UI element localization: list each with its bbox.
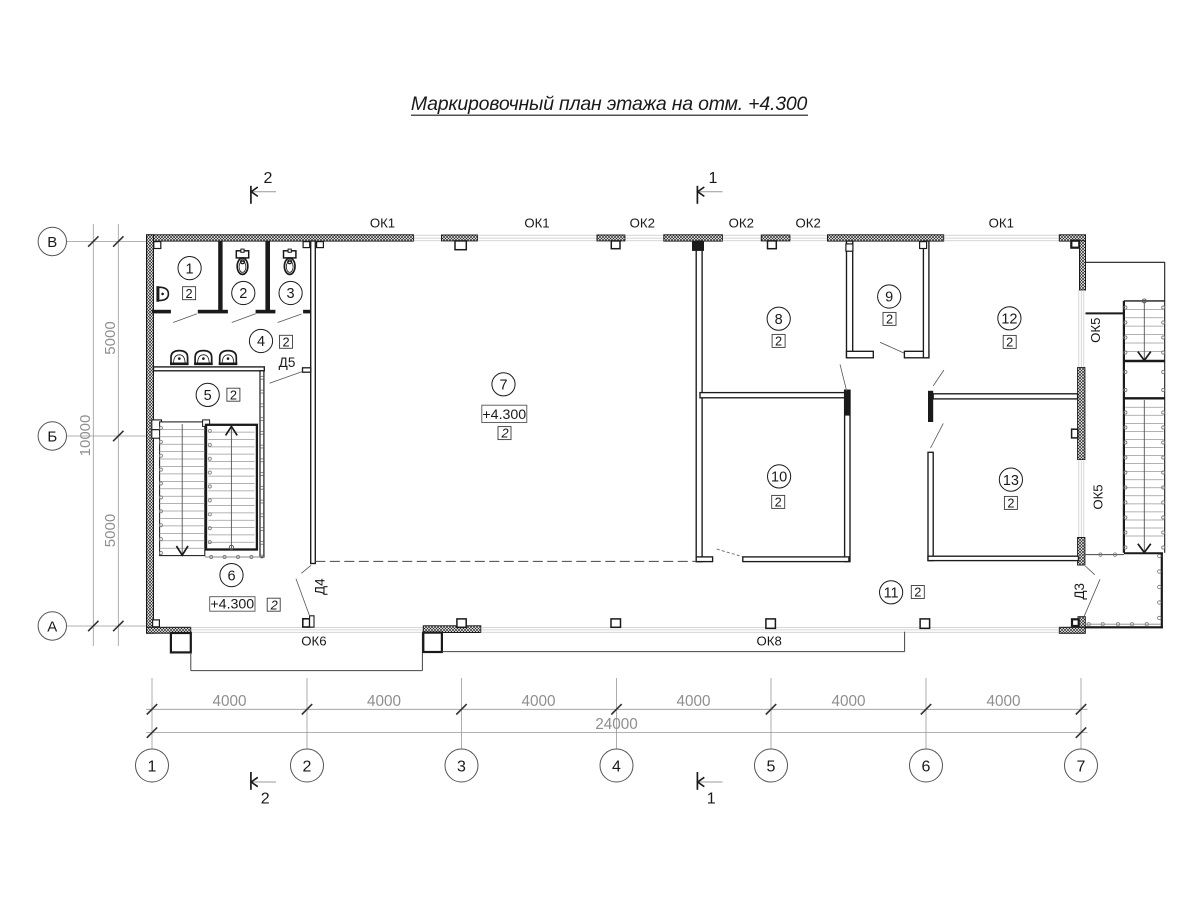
svg-text:5: 5: [204, 388, 212, 404]
svg-text:ОК6: ОК6: [301, 634, 326, 649]
svg-text:ОК2: ОК2: [729, 216, 754, 231]
svg-text:2: 2: [239, 286, 247, 302]
svg-text:1: 1: [186, 261, 194, 277]
svg-text:4000: 4000: [212, 693, 246, 710]
svg-text:ОК5: ОК5: [1088, 318, 1103, 343]
svg-text:4: 4: [257, 334, 265, 350]
svg-text:+4.300: +4.300: [210, 596, 254, 612]
svg-text:5000: 5000: [102, 514, 119, 547]
svg-text:4000: 4000: [831, 693, 865, 710]
svg-text:24000: 24000: [595, 716, 638, 733]
svg-text:2: 2: [1006, 335, 1013, 350]
svg-text:ОК1: ОК1: [370, 216, 395, 231]
svg-text:10000: 10000: [77, 415, 94, 457]
svg-text:Д4: Д4: [312, 578, 327, 595]
svg-text:4: 4: [612, 758, 621, 775]
svg-text:ОК1: ОК1: [524, 216, 549, 231]
svg-text:13: 13: [1003, 473, 1019, 489]
svg-text:5000: 5000: [102, 321, 119, 354]
svg-text:ОК1: ОК1: [989, 216, 1014, 231]
svg-text:Д3: Д3: [1072, 583, 1087, 600]
svg-text:ОК2: ОК2: [630, 216, 655, 231]
svg-text:2: 2: [914, 585, 921, 600]
svg-text:ОК2: ОК2: [796, 216, 821, 231]
svg-text:4000: 4000: [521, 693, 555, 710]
svg-text:2: 2: [264, 170, 273, 187]
svg-text:7: 7: [1077, 758, 1086, 775]
svg-text:7: 7: [499, 378, 507, 394]
svg-text:Д5: Д5: [279, 355, 296, 370]
svg-text:6: 6: [922, 758, 931, 775]
svg-text:2: 2: [1007, 496, 1014, 511]
svg-text:9: 9: [885, 290, 893, 306]
svg-text:8: 8: [775, 312, 783, 328]
svg-text:1: 1: [148, 758, 157, 775]
svg-text:3: 3: [287, 286, 295, 302]
svg-text:4000: 4000: [676, 693, 710, 710]
svg-text:11: 11: [884, 586, 899, 602]
svg-text:2: 2: [186, 286, 193, 301]
svg-text:2: 2: [282, 334, 289, 349]
svg-text:2: 2: [303, 758, 312, 775]
svg-text:2: 2: [270, 597, 278, 612]
svg-text:2: 2: [886, 312, 893, 327]
svg-text:2: 2: [261, 790, 270, 807]
svg-text:12: 12: [1001, 312, 1017, 328]
svg-text:Маркировочный план этажа на от: Маркировочный план этажа на отм. +4.300: [411, 93, 808, 115]
svg-text:5: 5: [767, 758, 776, 775]
svg-text:Б: Б: [47, 428, 57, 445]
svg-text:ОК5: ОК5: [1090, 484, 1105, 509]
svg-text:2: 2: [230, 387, 237, 402]
svg-text:1: 1: [707, 790, 716, 807]
svg-text:В: В: [47, 234, 57, 251]
svg-text:10: 10: [771, 470, 787, 486]
svg-text:1: 1: [709, 170, 718, 187]
svg-text:ОК8: ОК8: [757, 634, 782, 649]
svg-text:2: 2: [775, 334, 782, 349]
svg-text:2: 2: [775, 495, 782, 510]
svg-text:4000: 4000: [986, 693, 1020, 710]
svg-text:4000: 4000: [367, 693, 401, 710]
svg-text:А: А: [47, 618, 57, 635]
svg-text:6: 6: [227, 568, 235, 584]
svg-text:3: 3: [457, 758, 466, 775]
svg-text:+4.300: +4.300: [482, 407, 526, 423]
svg-text:2: 2: [500, 426, 508, 441]
